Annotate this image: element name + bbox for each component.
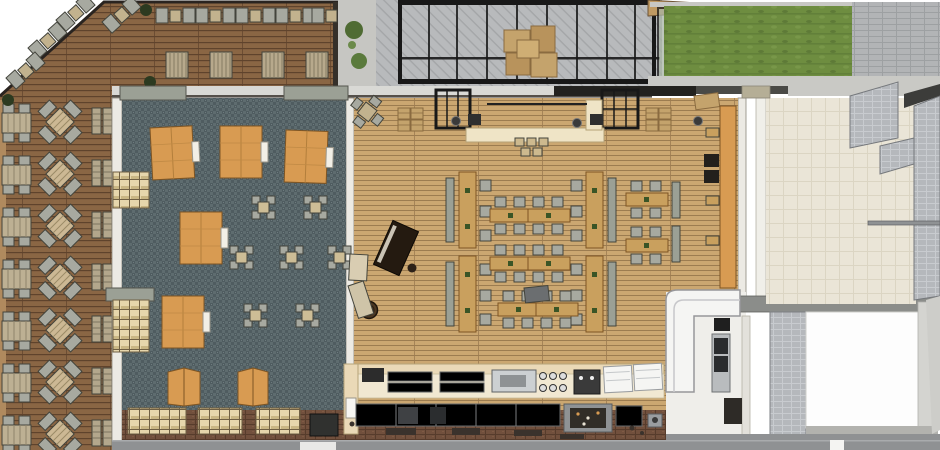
zone-lawn: [650, 2, 852, 76]
ceiling-beam: [284, 86, 348, 100]
doorway-mat: [724, 398, 742, 424]
floor-plan-canvas: [0, 0, 940, 450]
oven: [398, 407, 418, 424]
floor-plan-render: [0, 0, 940, 450]
zone-store-room: [770, 296, 940, 440]
service-station: [524, 285, 549, 302]
crate: [694, 93, 720, 110]
crate-stack: [398, 108, 423, 131]
range: [430, 407, 446, 424]
crate-stack: [646, 108, 671, 131]
ceiling-beam: [120, 86, 186, 100]
speaker-box: [704, 154, 719, 167]
shrub: [140, 4, 152, 16]
zone-paving-ne: [852, 2, 940, 78]
espresso-machine: [468, 114, 481, 125]
coffee-machine: [714, 318, 730, 331]
prep-counter: [616, 406, 642, 426]
locker-cubbies: [198, 408, 242, 434]
display-case: [603, 365, 632, 392]
bar-stool: [452, 117, 461, 126]
tile-wall-column: [770, 312, 806, 440]
side-bench: [349, 254, 368, 281]
espresso-machine: [590, 114, 603, 125]
wall-cubby-shelf: [113, 172, 149, 208]
zone-planting-strip: [338, 0, 378, 86]
orange-screen: [168, 368, 200, 406]
platform-table: [220, 126, 268, 178]
speaker-box: [704, 170, 719, 183]
bar-stool: [573, 119, 582, 128]
zone-courtyard: [376, 0, 714, 86]
zone-back-room: [742, 82, 940, 304]
wall-cubby-shelf: [113, 300, 149, 352]
locker-cubbies: [128, 408, 186, 434]
bar-stool: [694, 117, 703, 126]
shrub: [2, 94, 14, 106]
locker-cubbies: [256, 408, 300, 434]
display-case: [633, 363, 662, 390]
platform-table: [180, 212, 228, 264]
hand-rail: [868, 221, 940, 225]
orange-screen: [238, 368, 268, 406]
tile-wall-east: [914, 96, 940, 300]
wall-beam: [106, 288, 154, 301]
stacked-boxes: [504, 26, 557, 77]
platform-table: [162, 296, 210, 348]
platform-table: [284, 130, 334, 184]
monitor: [362, 368, 384, 382]
piano-stool: [408, 264, 417, 273]
control-panel: [574, 370, 600, 394]
zone-lounge-room: [106, 86, 351, 410]
floor-mat: [310, 414, 338, 436]
